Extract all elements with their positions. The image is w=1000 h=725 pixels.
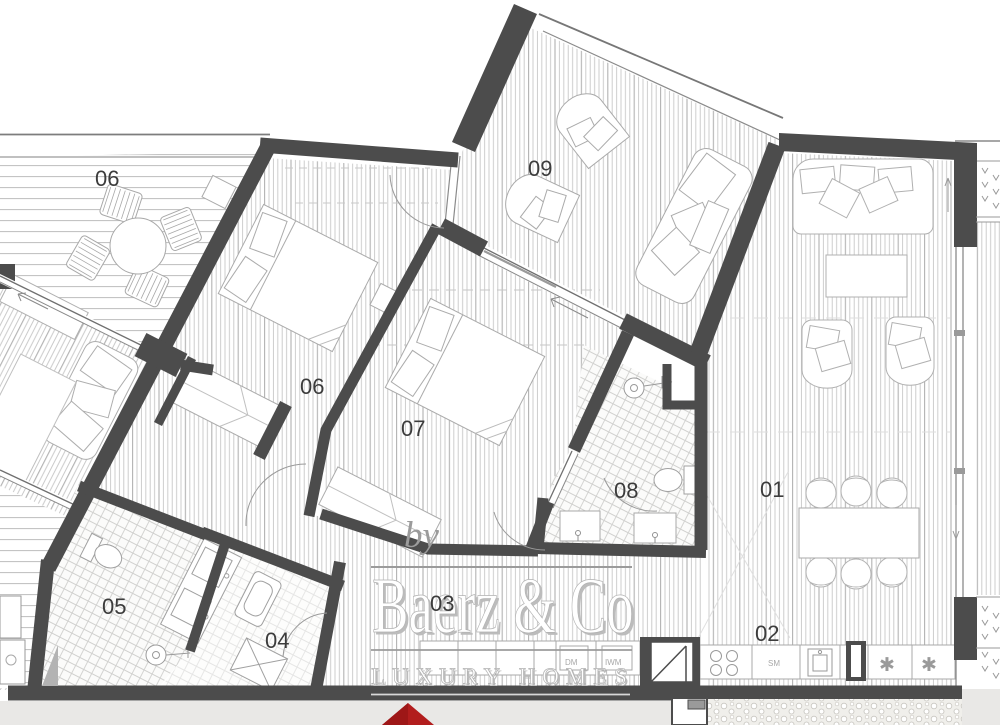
svg-text:✱: ✱ (879, 655, 895, 676)
svg-text:SM: SM (768, 659, 780, 668)
svg-text:LUXURY HOMES: LUXURY HOMES (371, 664, 634, 689)
svg-text:07: 07 (401, 416, 425, 441)
svg-text:06: 06 (95, 166, 119, 191)
svg-text:03: 03 (430, 591, 454, 616)
svg-text:06: 06 (300, 374, 324, 399)
svg-text:05: 05 (102, 594, 126, 619)
svg-text:01: 01 (760, 477, 784, 502)
svg-text:08: 08 (614, 478, 638, 503)
svg-text:02: 02 (755, 621, 779, 646)
svg-text:09: 09 (528, 156, 552, 181)
svg-text:04: 04 (265, 628, 289, 653)
svg-text:Baerz & Co: Baerz & Co (372, 561, 634, 650)
svg-text:✱: ✱ (921, 655, 937, 676)
svg-text:by: by (404, 515, 440, 556)
